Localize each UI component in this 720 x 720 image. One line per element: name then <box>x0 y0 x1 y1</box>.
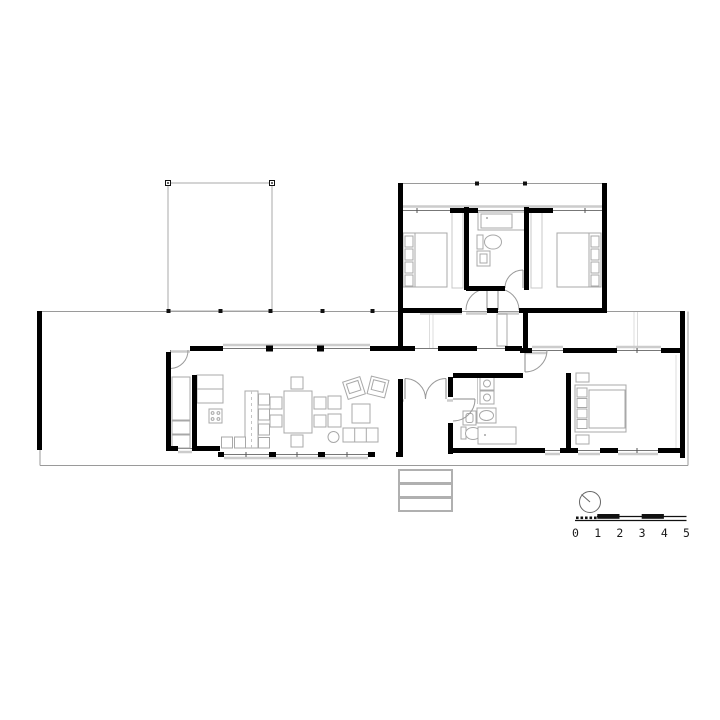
stove-icon <box>209 409 222 423</box>
scale-bar-ticks <box>576 517 597 520</box>
scale-label-2: 2 <box>616 526 623 540</box>
bathroom-master-fixtures <box>461 375 516 444</box>
side-table <box>328 432 339 443</box>
bed-master <box>575 373 626 444</box>
wardrobe-right <box>531 212 542 288</box>
living-set <box>328 376 389 442</box>
floor-plan-canvas: 0 1 2 3 4 5 <box>0 0 720 720</box>
dining-set <box>270 377 326 447</box>
dining-table <box>284 391 312 433</box>
scale-label-5: 5 <box>683 526 690 540</box>
sofa <box>343 428 378 442</box>
entry-steps <box>399 470 452 511</box>
hall-closet <box>497 314 507 346</box>
scale-label-4: 4 <box>661 526 668 540</box>
scale-label-0: 0 <box>572 526 579 540</box>
bathroom-wing-fixtures <box>477 212 526 266</box>
kitchen-fittings <box>172 375 270 448</box>
coffee-table <box>352 404 370 423</box>
wardrobe-left <box>452 212 463 288</box>
scale-bar-labels: 0 1 2 3 4 5 <box>572 526 690 540</box>
bed-left <box>403 233 447 287</box>
carport-outline <box>166 181 275 312</box>
scale-label-1: 1 <box>594 526 601 540</box>
scale-label-3: 3 <box>639 526 646 540</box>
scale-bar: 0 1 2 3 4 5 <box>572 514 690 540</box>
veranda-posts <box>167 182 528 314</box>
north-indicator-icon <box>580 492 601 513</box>
bed-right <box>557 233 601 287</box>
